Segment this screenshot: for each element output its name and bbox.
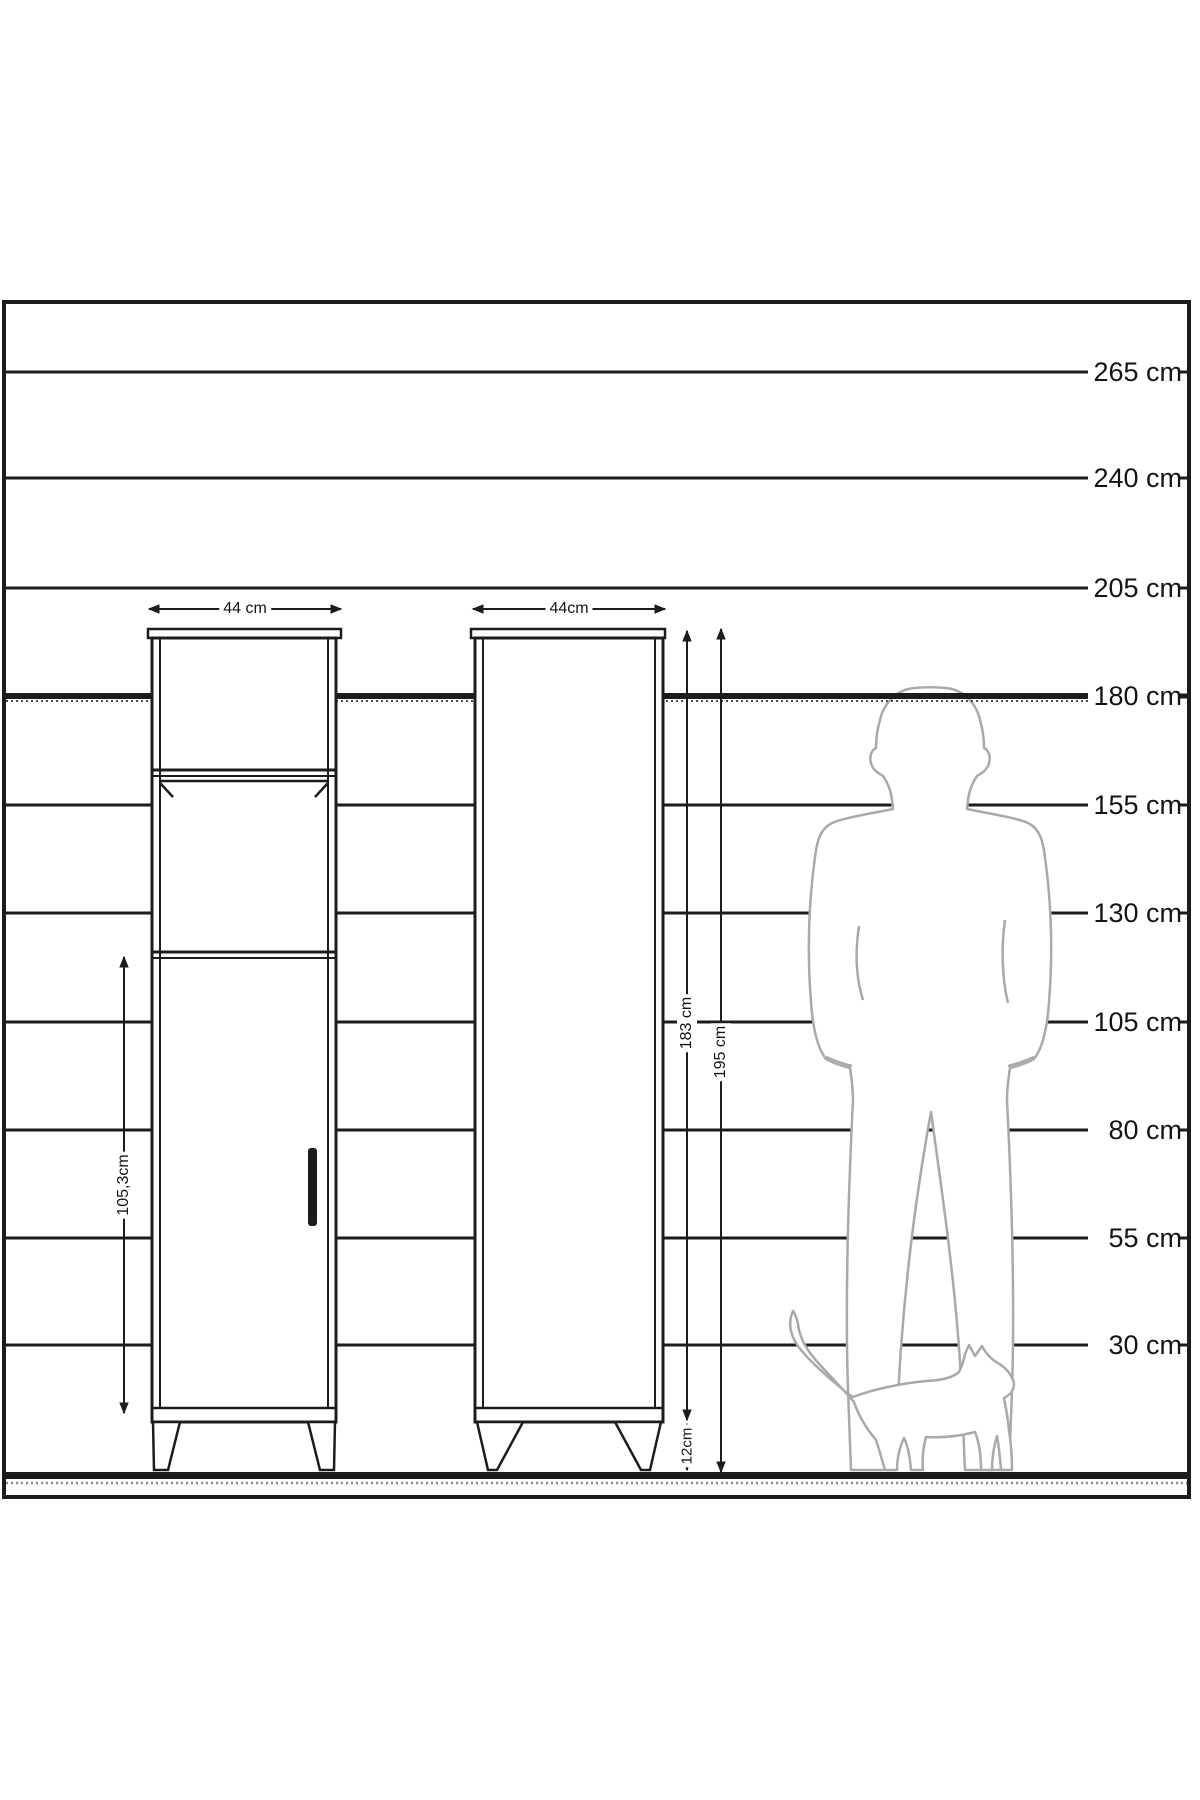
drawing-area: 265 cm 240 cm 205 cm 180 cm 155 cm 130 c… [2, 300, 1191, 1499]
scale-label-105: 105 cm [1090, 1006, 1182, 1038]
cabinet-front-view [148, 629, 341, 1470]
scale-label-240: 240 cm [1090, 462, 1182, 494]
scale-label-265: 265 cm [1090, 356, 1182, 388]
side-leg-right [615, 1422, 661, 1470]
scale-label-130: 130 cm [1090, 897, 1182, 929]
leg-height-label: 12cm [678, 1425, 697, 1468]
front-leg-right [308, 1422, 335, 1470]
arrow [717, 629, 725, 639]
blueprint-canvas: 265 cm 240 cm 205 cm 180 cm 155 cm 130 c… [0, 0, 1200, 1800]
side-body [475, 638, 663, 1422]
body-height-label: 183 cm [677, 994, 697, 1052]
arrow [149, 605, 159, 613]
door-handle [308, 1148, 317, 1226]
arrow [120, 1403, 128, 1413]
total-height-label: 195 cm [711, 1023, 731, 1081]
scale-label-180: 180 cm [1090, 680, 1182, 712]
scale-label-30: 30 cm [1090, 1329, 1182, 1361]
scale-label-80: 80 cm [1090, 1114, 1182, 1146]
scale-label-55: 55 cm [1090, 1222, 1182, 1254]
arrow [473, 605, 483, 613]
front-leg-left [153, 1422, 180, 1470]
scale-label-155: 155 cm [1090, 789, 1182, 821]
door-height-label: 105,3cm [114, 1151, 134, 1218]
arrow [683, 631, 691, 641]
front-width-label: 44 cm [219, 600, 271, 618]
side-depth-label: 44cm [545, 600, 592, 618]
diagram-svg [2, 300, 1191, 1499]
arrow [331, 605, 341, 613]
scale-label-205: 205 cm [1090, 572, 1182, 604]
cabinet-side-view [471, 629, 665, 1470]
arrow [120, 957, 128, 967]
front-body [152, 638, 336, 1422]
arrow [655, 605, 665, 613]
side-leg-left [477, 1422, 523, 1470]
arrow [683, 1410, 691, 1420]
ground-line [6, 1472, 1187, 1483]
arrow [717, 1462, 725, 1472]
